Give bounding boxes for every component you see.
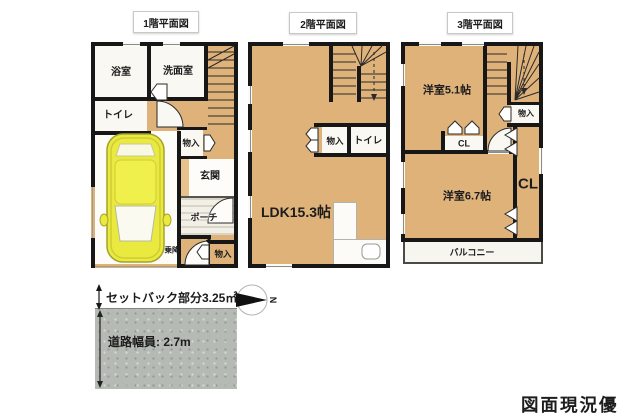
stair-divider-wall <box>507 62 511 102</box>
floor2-title-text: 2階平面図 <box>300 16 346 31</box>
floorplan-canvas: 1階平面図 2階平面図 3階平面図 <box>0 0 628 420</box>
wall <box>177 235 211 239</box>
door-gap <box>488 150 509 154</box>
wall <box>204 46 208 101</box>
wall <box>95 97 204 101</box>
window-gap <box>123 42 140 46</box>
road-width-label: 道路幅員: 2.7m <box>108 333 191 350</box>
wall <box>539 42 543 242</box>
room-label-cl-center: CL <box>458 140 470 149</box>
window-gap <box>248 86 252 104</box>
wall <box>91 238 95 268</box>
window-gap <box>248 130 252 152</box>
wall <box>314 123 390 127</box>
north-arrow-icon <box>236 285 267 315</box>
garage-floor <box>95 131 177 264</box>
garage-open-edge <box>95 266 177 267</box>
wall <box>206 240 238 244</box>
window-gap <box>163 42 180 46</box>
entrance-porch-sill <box>181 196 234 198</box>
room-label-bath: 浴室 <box>111 68 131 78</box>
wall <box>177 156 207 159</box>
wall <box>329 46 333 102</box>
wall <box>248 42 252 268</box>
floor1-title-text: 1階平面図 <box>143 15 189 30</box>
window-gap <box>462 42 484 46</box>
room-label-entrance: 玄関 <box>200 172 220 182</box>
room-label-cl-right: CL <box>518 177 538 192</box>
wall <box>507 102 539 105</box>
room-label-closet-bottom-1f: 物入 <box>214 250 231 259</box>
room-label-washroom: 洗面室 <box>163 67 193 77</box>
room-label-toilet-2f: トイレ <box>354 136 383 146</box>
setback-label: セットバック部分3.25㎡ <box>106 289 237 306</box>
stair-divider-wall <box>357 66 361 102</box>
room-label-porch: ポーチ <box>190 214 217 223</box>
wall <box>91 42 95 187</box>
floor3-title: 3階平面図 <box>447 12 513 34</box>
wall <box>147 46 151 101</box>
wall <box>248 42 390 46</box>
setback-measure-arrow <box>96 284 102 310</box>
room-label-closet-3f: 物入 <box>518 110 534 118</box>
floor3-title-text: 3階平面図 <box>457 16 503 31</box>
wall <box>513 127 517 238</box>
wall <box>206 240 210 268</box>
wall <box>234 42 238 268</box>
floor1-title: 1階平面図 <box>133 11 199 33</box>
label-car-access: 乗降 <box>165 246 180 254</box>
window-gap <box>401 64 405 86</box>
wall <box>347 127 351 153</box>
wall <box>441 131 445 154</box>
window-gap <box>401 214 405 234</box>
room-label-ldk: LDK15.3帖 <box>261 205 331 219</box>
room-label-6-7: 洋室6.7帖 <box>443 192 491 203</box>
wall <box>314 153 390 157</box>
wall <box>177 127 207 130</box>
window-gap <box>248 196 252 218</box>
floor2-title: 2階平面図 <box>289 12 357 34</box>
entrance-step <box>181 159 189 196</box>
window-gap <box>283 42 309 46</box>
priority-note: 図面現況優先 <box>521 392 628 420</box>
wall <box>95 131 151 135</box>
room-label-closet-2f: 物入 <box>326 137 343 146</box>
window-gap <box>401 162 405 188</box>
room-label-closet-mid-1f: 物入 <box>182 139 199 148</box>
room-label-5-1: 洋室5.1帖 <box>423 86 471 97</box>
garage-open-edge <box>92 187 93 238</box>
window-gap <box>266 264 292 268</box>
window-gap <box>539 148 543 174</box>
window-gap <box>419 42 441 46</box>
room-label-toilet-1f: トイレ <box>103 111 133 121</box>
kitchen-counter <box>333 239 388 266</box>
wall <box>483 46 487 150</box>
room-label-balcony: バルコニー <box>450 249 495 258</box>
north-letter: N <box>268 297 278 304</box>
